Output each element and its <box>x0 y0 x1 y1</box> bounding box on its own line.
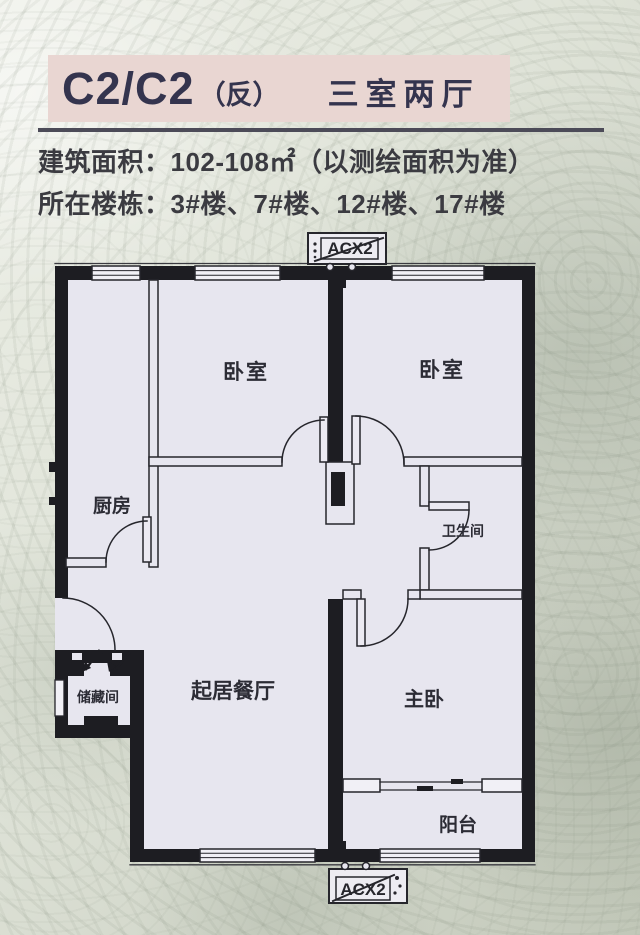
room-label-bathroom: 卫生间 <box>442 523 484 539</box>
room-label-living: 起居餐厅 <box>190 679 275 703</box>
wall-bath-left-lower <box>420 548 429 590</box>
room-label-storage: 储藏间 <box>76 689 119 705</box>
window-storage <box>55 680 64 716</box>
wall-kitchen-bottom <box>66 558 106 567</box>
divider-end-right <box>482 779 522 792</box>
wall-hall-south-1 <box>343 590 361 599</box>
room-label-balcony: 阳台 <box>439 813 477 836</box>
floor-plan-svg: ACX2 ACX2 厨房 卧室 <box>0 0 640 935</box>
ac-label-bottom: ACX2 <box>340 880 385 899</box>
wall-bedroom-right-bottom <box>404 457 522 466</box>
brochure-page: C2/C2 （反） 三室两厅 建筑面积：102-108㎡（以测绘面积为准） 所在… <box>0 0 640 935</box>
wall-ac-tab-top <box>334 280 346 288</box>
divider-end-left <box>343 779 380 792</box>
wall-hall-south-2 <box>408 590 420 599</box>
divider-leaf-2 <box>451 779 463 784</box>
wall-ac-tab-bottom <box>334 841 346 849</box>
storage-jamb-1 <box>66 663 84 676</box>
wall-bath-left-upper <box>420 466 429 506</box>
wall-center-upper <box>328 278 343 462</box>
ac-unit-top: ACX2 <box>308 233 386 271</box>
window-bedroom-left <box>195 266 280 280</box>
storage-notch-2 <box>112 653 122 660</box>
room-label-bedroom-right: 卧室 <box>419 358 465 382</box>
window-bedroom-right <box>392 266 484 280</box>
storage-notch-1 <box>72 653 82 660</box>
storage-threshold <box>84 716 118 725</box>
window-kitchen <box>92 266 140 280</box>
pipe-bump-1 <box>49 462 55 472</box>
wall-bedroom-left-bottom <box>149 457 282 466</box>
wall-right <box>522 266 535 862</box>
divider-leaf-1 <box>417 786 433 791</box>
wall-center-lower <box>328 599 343 849</box>
wall-living-left <box>130 650 144 862</box>
room-label-master: 主卧 <box>404 687 444 711</box>
wall-left <box>55 266 68 598</box>
room-label-kitchen: 厨房 <box>93 494 131 517</box>
window-balcony <box>380 849 480 862</box>
shaft-duct <box>331 472 345 506</box>
apartment-interior <box>55 266 535 862</box>
pipe-bump-2 <box>49 497 55 505</box>
window-living <box>200 849 315 862</box>
ac-unit-bottom: ACX2 <box>329 863 407 904</box>
wall-bath-bottom <box>420 590 522 599</box>
room-label-bedroom-left: 卧室 <box>223 360 269 384</box>
